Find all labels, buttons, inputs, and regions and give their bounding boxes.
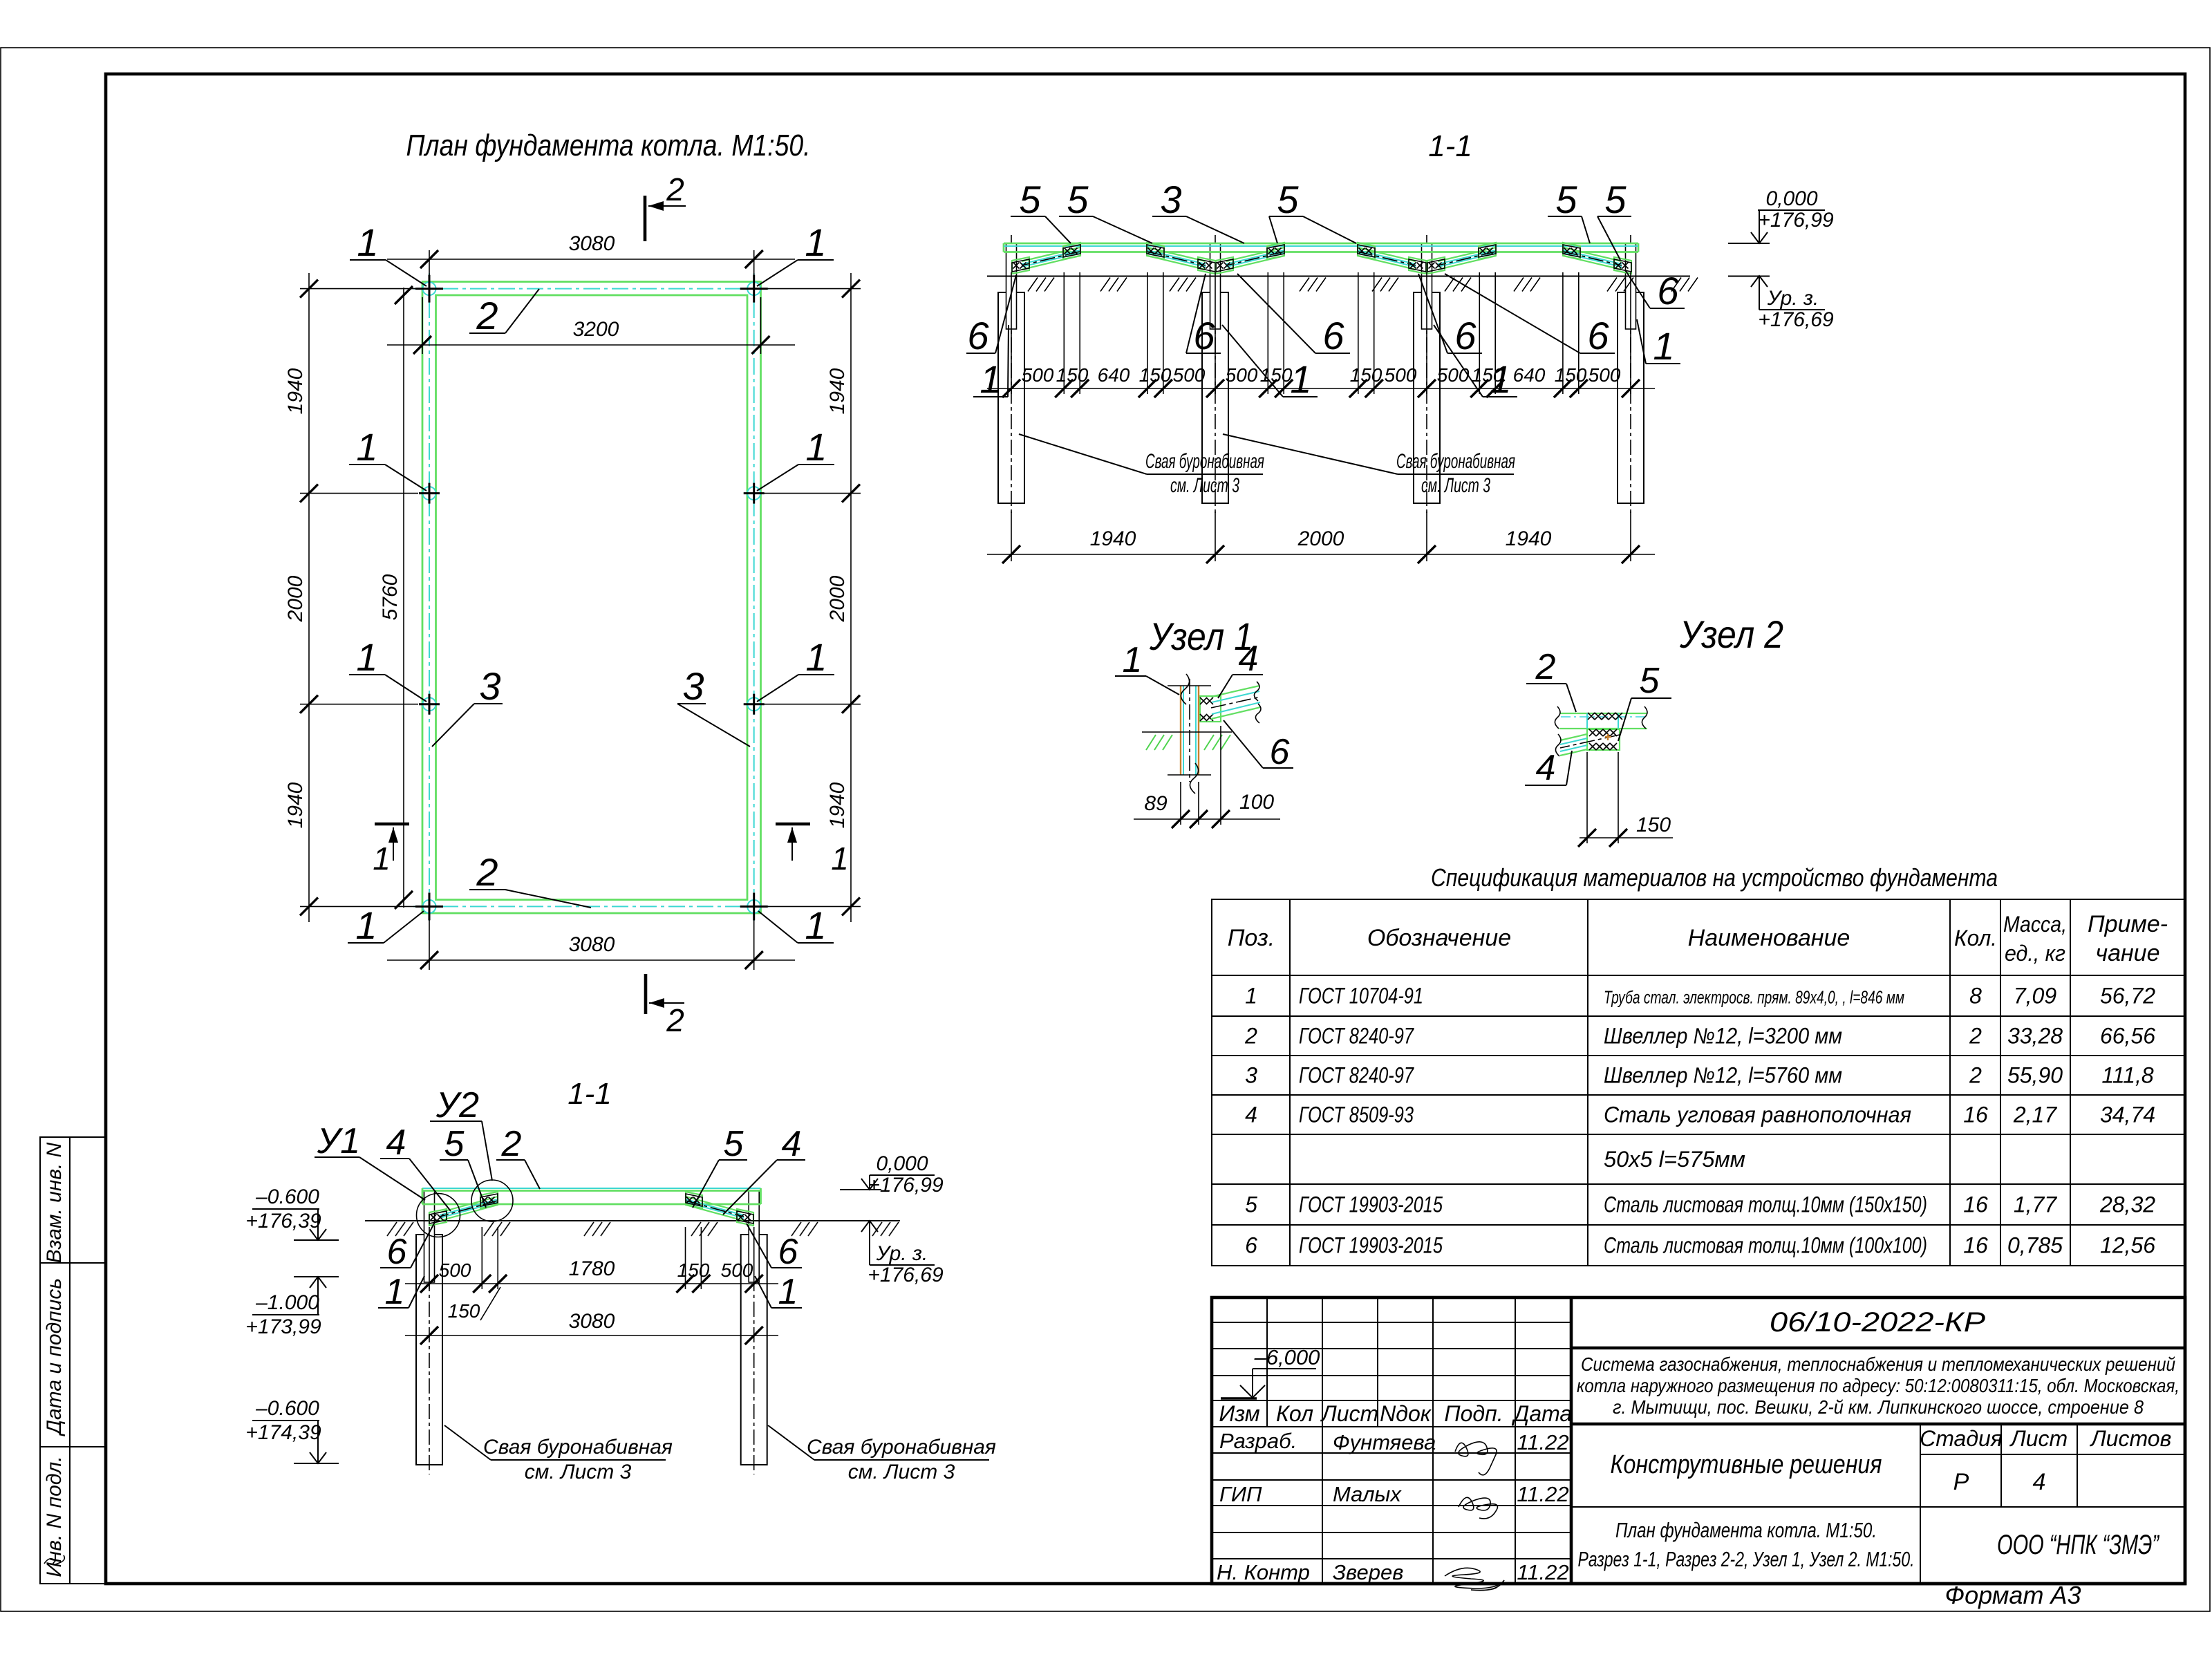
svg-text:7,09: 7,09 <box>2014 984 2056 1009</box>
svg-text:11.22: 11.22 <box>1517 1430 1568 1454</box>
svg-text:06/10-2022-КР: 06/10-2022-КР <box>1770 1307 1985 1338</box>
svg-text:–1.000: –1.000 <box>255 1291 319 1314</box>
svg-text:см. Лист 3: см. Лист 3 <box>1170 474 1239 497</box>
svg-text:6: 6 <box>1322 314 1344 357</box>
svg-text:1940: 1940 <box>284 368 307 414</box>
svg-text:1: 1 <box>805 425 827 469</box>
svg-text:150: 150 <box>1636 814 1671 836</box>
svg-text:5: 5 <box>1604 178 1627 221</box>
svg-text:1-1: 1-1 <box>568 1077 612 1111</box>
svg-text:1: 1 <box>805 635 827 679</box>
svg-text:У2: У2 <box>435 1085 479 1125</box>
svg-text:ГОСТ 8240-97: ГОСТ 8240-97 <box>1299 1024 1414 1049</box>
svg-text:3080: 3080 <box>569 232 615 255</box>
svg-text:66,56: 66,56 <box>2100 1024 2155 1049</box>
svg-text:1: 1 <box>356 635 377 679</box>
svg-text:Система газоснабжения, теплосн: Система газоснабжения, теплоснабжения и … <box>1581 1353 2175 1375</box>
svg-text:Швеллер №12, l=5760 мм: Швеллер №12, l=5760 мм <box>1604 1063 1842 1088</box>
svg-text:3200: 3200 <box>573 318 619 341</box>
svg-text:1940: 1940 <box>826 782 849 828</box>
svg-text:500: 500 <box>1173 364 1206 386</box>
svg-text:Формат А3: Формат А3 <box>1945 1581 2081 1609</box>
svg-text:2,17: 2,17 <box>2013 1103 2057 1127</box>
svg-text:Свая буронабивная: Свая буронабивная <box>807 1436 996 1459</box>
svg-text:Швеллер №12, l=3200 мм: Швеллер №12, l=3200 мм <box>1604 1024 1842 1049</box>
svg-text:1,77: 1,77 <box>2014 1192 2057 1217</box>
svg-text:Листов: Листов <box>2090 1426 2172 1451</box>
svg-text:см. Лист 3: см. Лист 3 <box>1421 474 1490 497</box>
svg-text:6: 6 <box>1193 314 1215 357</box>
svg-text:–0.600: –0.600 <box>255 1185 319 1208</box>
svg-text:Взам. инв. N: Взам. инв. N <box>43 1142 66 1263</box>
svg-text:2: 2 <box>476 850 498 894</box>
svg-text:1: 1 <box>805 903 826 947</box>
svg-text:0,000: 0,000 <box>876 1152 928 1175</box>
svg-text:6: 6 <box>778 1232 798 1272</box>
svg-text:Малых: Малых <box>1333 1482 1402 1506</box>
svg-text:5: 5 <box>444 1124 465 1164</box>
svg-text:ГИП: ГИП <box>1219 1482 1262 1506</box>
svg-text:3: 3 <box>479 664 500 708</box>
svg-text:Сталь листовая толщ.10мм (150х: Сталь листовая толщ.10мм (150х150) <box>1604 1192 1927 1217</box>
svg-text:Фунтяева: Фунтяева <box>1333 1430 1436 1454</box>
svg-text:котла наружного размещения по: котла наружного размещения по адресу: 50… <box>1577 1375 2180 1396</box>
svg-text:Приме-: Приме- <box>2088 911 2168 937</box>
svg-text:Конструтивные решения: Конструтивные решения <box>1611 1450 1882 1479</box>
svg-text:ГОСТ 19903-2015: ГОСТ 19903-2015 <box>1299 1233 1443 1258</box>
svg-text:Разрез 1-1, Разрез 2-2, Узел 1: Разрез 1-1, Разрез 2-2, Узел 1, Узел 2. … <box>1578 1547 1915 1571</box>
svg-text:5: 5 <box>1555 178 1577 221</box>
svg-text:2000: 2000 <box>284 575 307 622</box>
svg-text:150: 150 <box>677 1259 710 1281</box>
svg-text:5760: 5760 <box>379 574 402 620</box>
svg-text:500: 500 <box>439 1259 471 1281</box>
svg-text:0,785: 0,785 <box>2007 1233 2063 1258</box>
svg-text:55,90: 55,90 <box>2007 1063 2063 1088</box>
svg-text:50х5 l=575мм: 50х5 l=575мм <box>1604 1147 1745 1172</box>
svg-text:11.22: 11.22 <box>1517 1482 1568 1506</box>
svg-text:1: 1 <box>373 841 391 877</box>
svg-text:500: 500 <box>721 1259 753 1281</box>
svg-text:ед., кг: ед., кг <box>2005 941 2065 966</box>
svg-text:1940: 1940 <box>826 368 849 414</box>
svg-text:1: 1 <box>355 903 377 947</box>
svg-text:Узел 2: Узел 2 <box>1679 612 1783 656</box>
svg-text:150: 150 <box>448 1300 480 1322</box>
svg-text:4: 4 <box>1239 639 1259 679</box>
svg-text:–0.600: –0.600 <box>255 1397 319 1420</box>
svg-text:см. Лист 3: см. Лист 3 <box>525 1461 632 1483</box>
svg-text:ГОСТ 19903-2015: ГОСТ 19903-2015 <box>1299 1192 1443 1217</box>
svg-text:4: 4 <box>386 1123 406 1163</box>
svg-text:Дата: Дата <box>1512 1401 1572 1426</box>
svg-text:Лист: Лист <box>1320 1401 1378 1426</box>
svg-text:1: 1 <box>831 841 849 877</box>
svg-text:Ур. з.: Ур. з. <box>876 1242 928 1265</box>
svg-text:1: 1 <box>1653 324 1674 368</box>
svg-text:16: 16 <box>1963 1192 1988 1217</box>
svg-text:+176,69: +176,69 <box>1758 308 1834 331</box>
svg-text:34,74: 34,74 <box>2100 1103 2155 1127</box>
svg-text:ГОСТ 10704-91: ГОСТ 10704-91 <box>1299 984 1423 1009</box>
svg-text:11.22: 11.22 <box>1517 1560 1568 1584</box>
svg-text:Спецификация материалов на уст: Спецификация материалов на устройство фу… <box>1431 863 1998 892</box>
svg-text:г. Мытищи, пос. Вешки, 2-й км.: г. Мытищи, пос. Вешки, 2-й км. Липкинско… <box>1613 1396 2144 1418</box>
svg-text:1: 1 <box>1490 357 1511 401</box>
svg-text:150: 150 <box>1350 364 1382 386</box>
svg-text:1: 1 <box>1245 984 1257 1009</box>
svg-text:1780: 1780 <box>569 1257 615 1280</box>
svg-text:4: 4 <box>1245 1103 1257 1127</box>
svg-text:5: 5 <box>1245 1192 1257 1217</box>
svg-text:150: 150 <box>1555 364 1587 386</box>
svg-text:План фундамента котла. М1:50.: План фундамента котла. М1:50. <box>1615 1518 1877 1542</box>
svg-text:Узел 1: Узел 1 <box>1149 615 1253 658</box>
svg-text:89: 89 <box>1144 792 1168 815</box>
svg-text:+176,99: +176,99 <box>868 1174 944 1197</box>
svg-text:3080: 3080 <box>569 1310 615 1333</box>
svg-text:640: 640 <box>1098 364 1130 386</box>
svg-text:1: 1 <box>356 425 377 469</box>
svg-text:16: 16 <box>1963 1103 1988 1127</box>
svg-text:3: 3 <box>1160 178 1181 221</box>
svg-text:Масса,: Масса, <box>2003 912 2067 937</box>
svg-text:Наименование: Наименование <box>1688 925 1850 951</box>
svg-text:4: 4 <box>1536 748 1556 788</box>
svg-text:150: 150 <box>1056 364 1089 386</box>
svg-text:1940: 1940 <box>284 782 307 828</box>
svg-text:6: 6 <box>1657 269 1679 312</box>
svg-text:Свая буронабивная: Свая буронабивная <box>483 1436 673 1459</box>
svg-text:чание: чание <box>2095 940 2159 966</box>
svg-text:Кол.: Кол. <box>1954 926 1997 950</box>
svg-text:+176,69: +176,69 <box>868 1264 944 1286</box>
svg-text:4: 4 <box>2033 1469 2046 1495</box>
svg-text:5: 5 <box>724 1124 744 1164</box>
svg-text:Н. Контр: Н. Контр <box>1217 1560 1310 1584</box>
svg-text:6: 6 <box>967 314 989 357</box>
svg-text:Изм: Изм <box>1219 1401 1259 1426</box>
svg-text:1: 1 <box>1290 357 1311 401</box>
svg-text:см. Лист 3: см. Лист 3 <box>848 1461 955 1483</box>
svg-text:Ур. з.: Ур. з. <box>1767 287 1819 310</box>
svg-text:Лист: Лист <box>2009 1426 2068 1451</box>
svg-text:2000: 2000 <box>1297 527 1344 550</box>
svg-text:500: 500 <box>1022 364 1054 386</box>
svg-text:5: 5 <box>1019 178 1041 221</box>
svg-text:33,28: 33,28 <box>2007 1024 2063 1049</box>
svg-text:2: 2 <box>501 1124 522 1164</box>
svg-text:2: 2 <box>666 1002 684 1038</box>
svg-text:5: 5 <box>1277 178 1299 221</box>
svg-text:1940: 1940 <box>1506 527 1552 550</box>
svg-text:1: 1 <box>778 1272 798 1312</box>
svg-text:12,56: 12,56 <box>2100 1233 2155 1258</box>
svg-text:Зверев: Зверев <box>1333 1560 1403 1584</box>
svg-text:3: 3 <box>682 664 704 708</box>
svg-text:500: 500 <box>1588 364 1621 386</box>
svg-text:Свая буронабивная: Свая буронабивная <box>1145 450 1264 473</box>
svg-text:Кол: Кол <box>1276 1401 1313 1426</box>
svg-text:Nдок: Nдок <box>1380 1401 1432 1426</box>
svg-text:500: 500 <box>1226 364 1258 386</box>
svg-text:2: 2 <box>1969 1063 1982 1088</box>
svg-text:16: 16 <box>1963 1233 1988 1258</box>
svg-text:2: 2 <box>666 171 684 207</box>
svg-text:500: 500 <box>1437 364 1470 386</box>
svg-text:Р: Р <box>1953 1469 1969 1495</box>
svg-text:+174,39: +174,39 <box>245 1421 321 1444</box>
svg-text:2: 2 <box>1244 1024 1257 1049</box>
svg-text:5: 5 <box>1067 178 1089 221</box>
svg-text:5: 5 <box>1640 661 1660 701</box>
svg-text:640: 640 <box>1513 364 1546 386</box>
svg-text:Поз.: Поз. <box>1228 925 1275 951</box>
svg-text:2000: 2000 <box>826 575 849 622</box>
svg-text:6: 6 <box>1270 732 1290 772</box>
svg-text:8: 8 <box>1969 984 1982 1009</box>
svg-text:1: 1 <box>1123 640 1143 680</box>
svg-text:2: 2 <box>1969 1024 1982 1049</box>
svg-text:Подп.: Подп. <box>1444 1401 1503 1426</box>
svg-text:1: 1 <box>385 1272 405 1312</box>
svg-text:4: 4 <box>782 1124 802 1164</box>
svg-text:ГОСТ 8240-97: ГОСТ 8240-97 <box>1299 1063 1414 1088</box>
svg-text:Сталь угловая равнополочная: Сталь угловая равнополочная <box>1604 1103 1911 1127</box>
svg-text:1: 1 <box>805 221 826 264</box>
svg-text:6: 6 <box>1245 1233 1257 1258</box>
svg-text:+176,99: +176,99 <box>1758 209 1834 232</box>
svg-text:Дата и подпись: Дата и подпись <box>43 1278 66 1436</box>
svg-text:У1: У1 <box>317 1121 360 1161</box>
svg-text:6: 6 <box>1454 314 1477 357</box>
svg-text:1940: 1940 <box>1090 527 1136 550</box>
svg-text:0,000: 0,000 <box>1765 187 1817 210</box>
svg-text:Труба стал. электросв. прям. 8: Труба стал. электросв. прям. 89х4,0, , l… <box>1604 987 1904 1008</box>
svg-text:Свая буронабивная: Свая буронабивная <box>1396 450 1515 473</box>
svg-text:–6,000: –6,000 <box>1254 1345 1320 1369</box>
svg-text:Инв. N подл.: Инв. N подл. <box>43 1456 66 1577</box>
svg-text:56,72: 56,72 <box>2100 984 2155 1009</box>
svg-text:1: 1 <box>357 221 378 264</box>
svg-text:3080: 3080 <box>569 933 615 956</box>
svg-text:150: 150 <box>1139 364 1172 386</box>
svg-text:3: 3 <box>1245 1063 1257 1088</box>
svg-text:Стадия: Стадия <box>1920 1426 2003 1451</box>
svg-text:+173,99: +173,99 <box>245 1315 321 1338</box>
svg-text:ООО “НПК “ЗМЭ”: ООО “НПК “ЗМЭ” <box>1997 1530 2159 1560</box>
svg-text:6: 6 <box>387 1232 407 1272</box>
svg-text:2: 2 <box>476 294 498 337</box>
svg-text:1: 1 <box>980 357 1001 401</box>
svg-text:6: 6 <box>1587 314 1609 357</box>
svg-text:Сталь листовая толщ.10мм (100х: Сталь листовая толщ.10мм (100х100) <box>1604 1233 1927 1258</box>
svg-text:ГОСТ 8509-93: ГОСТ 8509-93 <box>1299 1103 1414 1127</box>
svg-text:1-1: 1-1 <box>1428 129 1472 163</box>
svg-text:28,32: 28,32 <box>2099 1192 2155 1217</box>
svg-text:Разраб.: Разраб. <box>1219 1429 1297 1453</box>
svg-text:Обозначение: Обозначение <box>1367 925 1511 951</box>
svg-text:2: 2 <box>1535 647 1556 687</box>
svg-text:План фундамента котла. М1:50.: План фундамента котла. М1:50. <box>406 129 811 162</box>
svg-text:100: 100 <box>1239 791 1274 814</box>
svg-text:111,8: 111,8 <box>2101 1063 2154 1088</box>
svg-text:500: 500 <box>1385 364 1417 386</box>
